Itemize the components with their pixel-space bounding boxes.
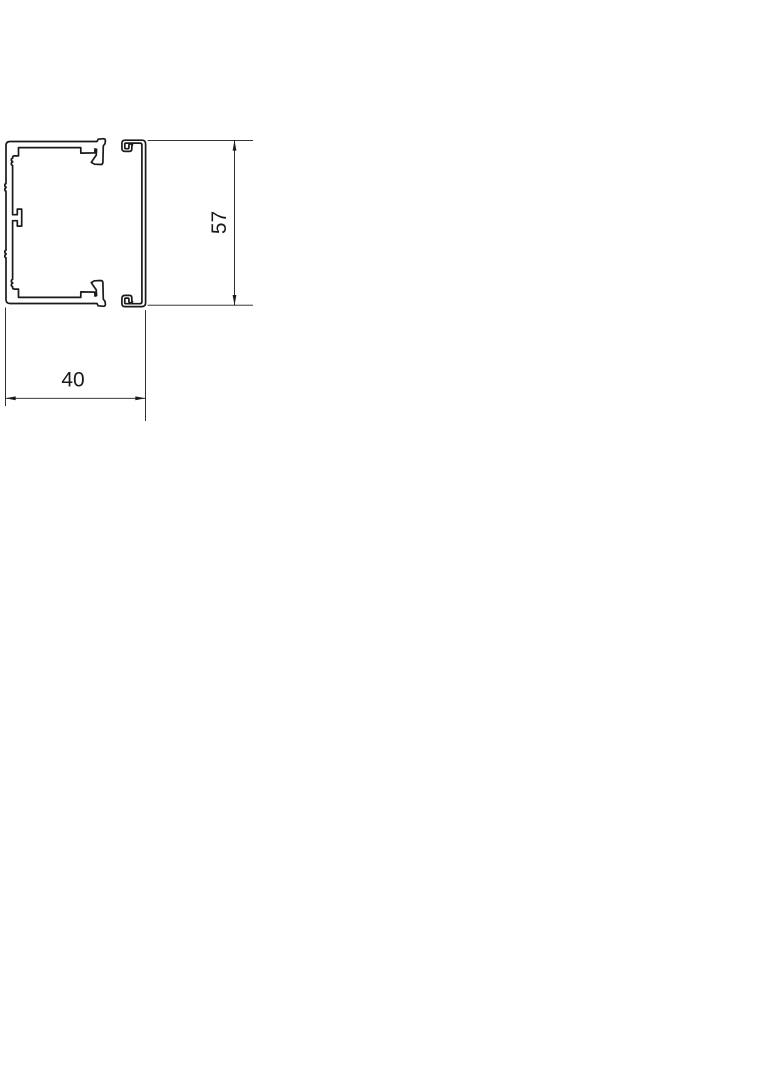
drawing-canvas: 57 40 [0,0,784,1066]
height-dimension-label: 57 [208,211,231,234]
width-arrow-right-icon [135,396,145,400]
trunking-base-profile [5,139,106,307]
trunking-cover-profile [122,140,146,306]
height-arrow-up-icon [233,140,237,150]
height-dimension [148,140,253,305]
technical-drawing: 57 40 [0,0,784,1066]
width-dimension-label: 40 [61,369,84,392]
width-arrow-left-icon [6,396,16,400]
height-arrow-down-icon [233,295,237,305]
width-dimension [6,308,146,422]
